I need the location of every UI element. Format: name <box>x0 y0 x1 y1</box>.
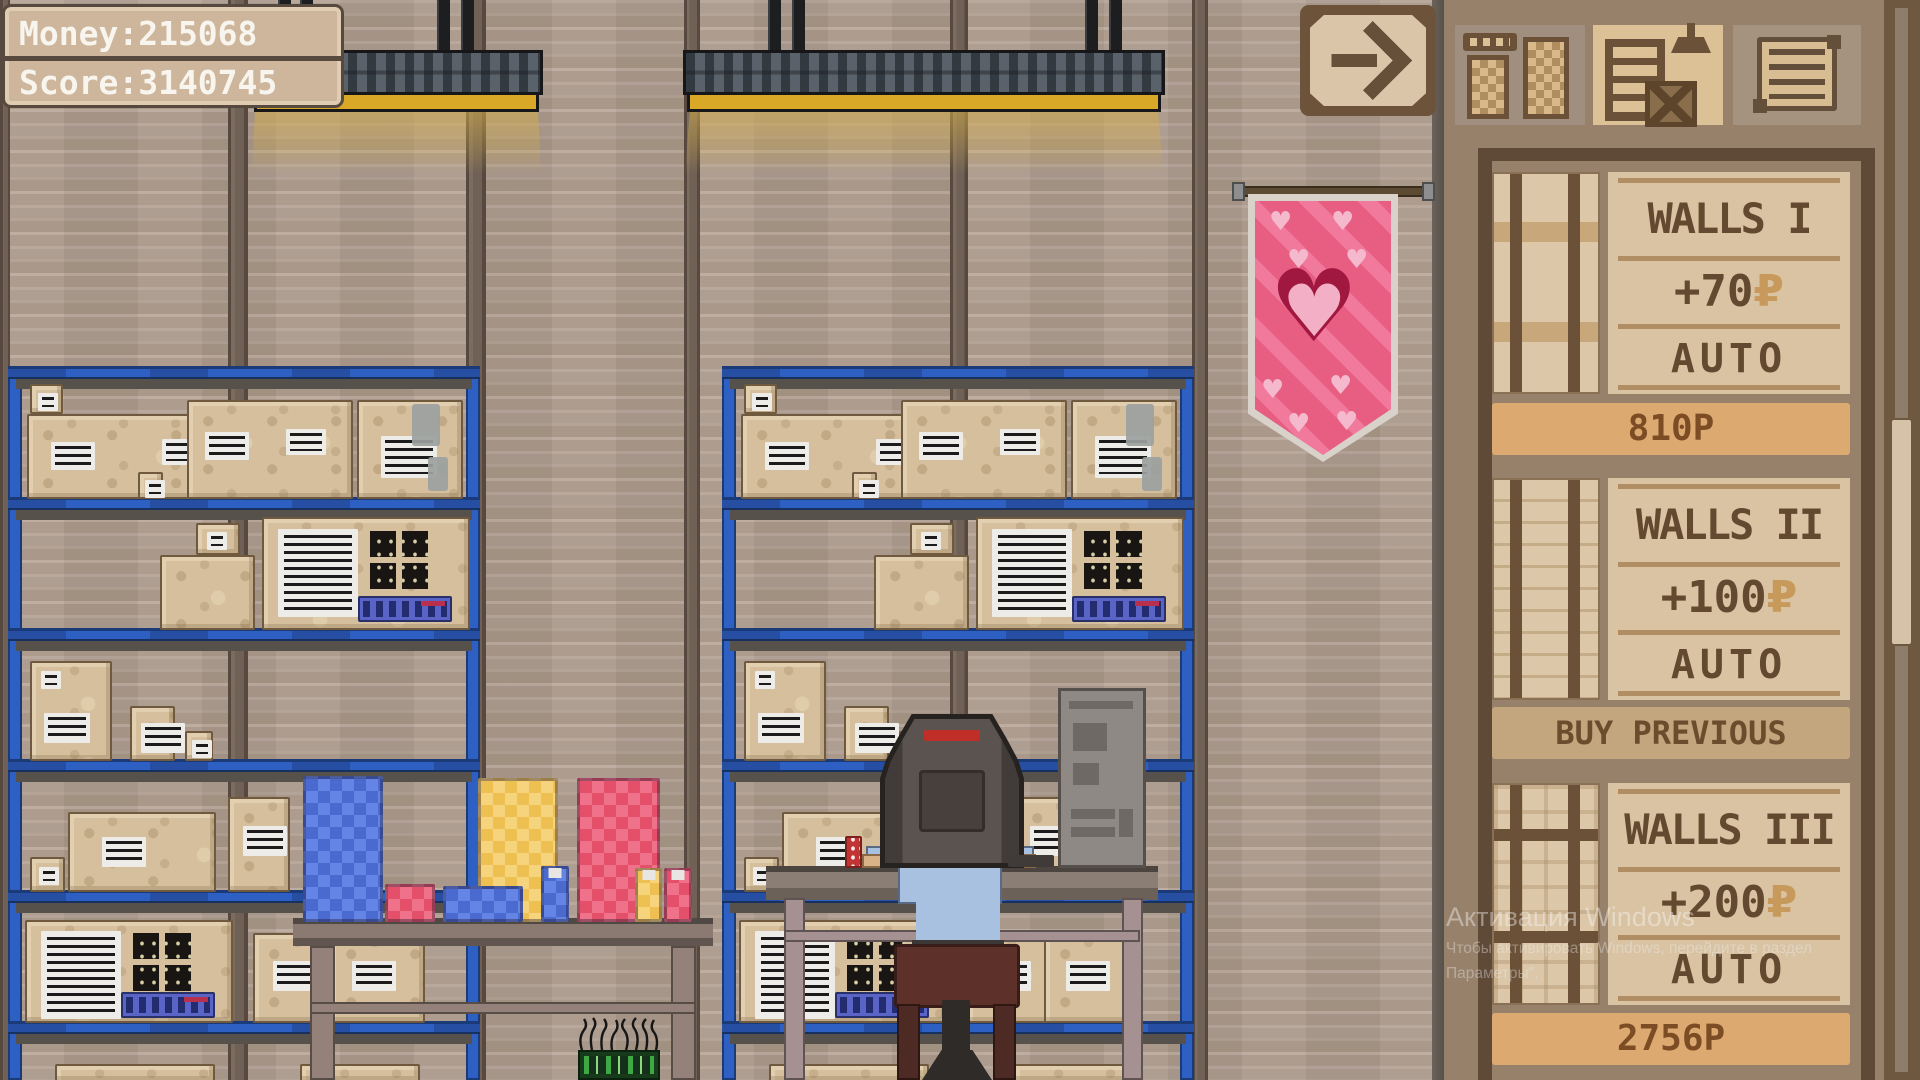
chair-leg <box>993 1004 1016 1080</box>
cardboard-box <box>357 400 463 499</box>
tower-bay <box>1073 723 1107 751</box>
item-bonus: +200₽ <box>1608 877 1850 928</box>
shipping-label <box>765 442 809 470</box>
wall-pillar <box>1192 0 1208 1080</box>
scroll-icon <box>1757 37 1837 111</box>
barcode-icon <box>121 992 215 1018</box>
scrollbar-thumb[interactable] <box>1890 418 1913 646</box>
qr-label-icon <box>1084 531 1142 589</box>
shipping-label <box>41 931 121 1019</box>
shipping-label <box>428 457 448 491</box>
shipping-label <box>145 480 165 498</box>
office-chair <box>894 944 1020 1008</box>
item-price-tag: 810P <box>1492 403 1850 455</box>
shipping-label <box>758 713 804 743</box>
cardboard-box <box>901 400 1067 499</box>
cardboard-box <box>55 1064 215 1080</box>
shipping-label <box>41 671 61 689</box>
tower-vent <box>1071 827 1115 837</box>
cardboard-box <box>910 523 954 555</box>
cardboard-box <box>30 384 63 414</box>
shop-item-walls-1[interactable]: WALLS I +70₽ AUTO <box>1492 172 1850 394</box>
shipping-label <box>1142 457 1162 491</box>
scroll-curl <box>1753 99 1767 113</box>
shipping-label <box>102 837 146 867</box>
cardboard-box <box>187 400 353 499</box>
shipping-label <box>44 713 90 743</box>
shipping-label <box>755 671 775 689</box>
shipping-label <box>51 442 95 470</box>
cardboard-box <box>744 661 826 761</box>
item-mode: AUTO <box>1608 642 1850 688</box>
lamp-post <box>461 0 474 55</box>
small-heart-icon: ♥ <box>1345 247 1368 273</box>
item-bonus: +100₽ <box>1608 572 1850 623</box>
lamp-post <box>1109 0 1122 55</box>
tower-vent <box>1119 809 1133 837</box>
lamp-post <box>437 0 450 55</box>
cardboard-box <box>30 661 112 761</box>
fabric-roll <box>635 868 662 922</box>
shelf-shadow <box>16 772 472 782</box>
monitor-vent <box>919 770 985 832</box>
next-room-button[interactable] <box>1300 5 1436 116</box>
cardboard-box <box>1071 400 1177 499</box>
cardboard-box <box>68 812 216 892</box>
tab-storage[interactable] <box>1593 25 1723 125</box>
shelf-shadow <box>16 641 472 651</box>
pc-tower <box>1058 688 1146 868</box>
shipping-label <box>919 432 963 460</box>
item-info: WALLS III +200₽ AUTO <box>1608 783 1850 1005</box>
small-heart-icon: ♥ <box>1261 377 1284 403</box>
shipping-label <box>352 961 396 991</box>
item-info: WALLS II +100₽ AUTO <box>1608 478 1850 700</box>
rod-cap-icon <box>1232 182 1245 201</box>
item-title: WALLS III <box>1608 805 1850 854</box>
rod-cap-icon <box>1422 182 1435 201</box>
ruble-icon: ₽ <box>1753 266 1784 317</box>
shelf-rack <box>722 366 736 1080</box>
small-heart-icon: ♥ <box>1335 409 1358 435</box>
shipping-label <box>38 393 58 411</box>
character-back <box>916 898 1000 944</box>
cardboard-box <box>262 517 470 630</box>
wall-preview-icon <box>1492 783 1600 1005</box>
item-price-tag: 2756P <box>1492 1013 1850 1065</box>
desk-leg <box>784 898 805 1080</box>
table-crossbar <box>310 1002 696 1014</box>
item-mode: AUTO <box>1608 947 1850 993</box>
qr-label-icon <box>370 531 428 589</box>
character-hand <box>862 854 882 868</box>
panel-border <box>1478 148 1875 161</box>
banner-cloth: ♥ ♥ ♥ ♥ ♥ ♥ ♥ ♥ ♥ ♥ <box>1248 194 1398 462</box>
dresser-door-icon <box>1467 55 1509 119</box>
lamp-post <box>768 0 781 55</box>
scroll-curl <box>1827 35 1841 49</box>
ruble-icon: ₽ <box>1767 572 1798 623</box>
shipping-label <box>205 432 249 460</box>
fabric-roll <box>443 886 523 922</box>
fabric-table <box>293 918 713 946</box>
shipping-label <box>286 429 326 455</box>
game-screen: ♥ ♥ ♥ ♥ ♥ ♥ ♥ ♥ ♥ ♥ <box>0 0 1920 1080</box>
shipping-label <box>992 529 1072 617</box>
shelf-beam <box>722 366 1194 379</box>
shipping-label <box>1126 404 1154 446</box>
shelf-beam <box>8 366 480 379</box>
shipping-label <box>1000 429 1040 455</box>
tower-vent <box>1069 701 1133 709</box>
tower-bay <box>1073 763 1099 785</box>
shipping-label <box>192 740 212 758</box>
item-bonus: +70₽ <box>1608 266 1850 317</box>
buy-previous-button[interactable]: BUY PREVIOUS <box>1492 707 1850 759</box>
fabric-roll <box>664 868 692 922</box>
sprouting-device <box>578 1050 660 1080</box>
dresser-icon <box>1463 33 1517 51</box>
chair-leg <box>897 1004 920 1080</box>
banner-pattern: ♥ ♥ ♥ ♥ ♥ ♥ ♥ ♥ ♥ ♥ <box>1255 201 1391 455</box>
shipping-label <box>39 867 59 885</box>
desk-leg <box>1122 898 1143 1080</box>
item-info: WALLS I +70₽ AUTO <box>1608 172 1850 394</box>
shipping-label <box>278 529 358 617</box>
crate-icon <box>1645 81 1697 127</box>
cardboard-box <box>844 706 889 761</box>
lamp-post <box>792 0 805 55</box>
wire-sprouts-icon <box>574 1016 664 1052</box>
crt-monitor <box>880 714 1024 868</box>
shipping-label <box>1066 961 1110 991</box>
shipping-label <box>859 480 879 498</box>
shipping-label <box>752 393 772 411</box>
lamp-post <box>1085 0 1098 55</box>
tower-vent <box>1071 809 1115 819</box>
shipping-label <box>141 723 185 753</box>
cardboard-box <box>30 857 65 892</box>
shop-item-walls-3[interactable]: WALLS III +200₽ AUTO <box>1492 783 1850 1005</box>
panel-scrollbar <box>1884 0 1920 1080</box>
hanging-lamp-icon <box>1671 23 1711 59</box>
chair-pedestal <box>942 1000 970 1058</box>
stats-panel: Money:215068 Score:3140745 <box>2 4 344 108</box>
arrow-right-icon <box>1310 15 1426 106</box>
ceiling-lamp <box>683 50 1165 95</box>
tab-orders[interactable] <box>1733 25 1861 125</box>
item-title: WALLS II <box>1608 500 1850 549</box>
fabric-roll <box>541 866 569 922</box>
cardboard-box <box>196 523 240 555</box>
shipping-label <box>207 532 227 550</box>
shelf-rack <box>8 366 22 1080</box>
shelf-shadow <box>16 379 472 389</box>
cardboard-box <box>874 555 969 630</box>
shelf-shadow <box>730 379 1186 389</box>
panel-border <box>1478 148 1492 1080</box>
cardboard-box <box>1014 1064 1134 1080</box>
money-label: Money:215068 <box>19 12 339 56</box>
cardboard-box <box>185 731 213 761</box>
small-heart-icon: ♥ <box>1331 209 1354 235</box>
small-heart-icon: ♥ <box>1329 373 1352 399</box>
shipping-label <box>412 404 440 446</box>
qr-label-icon <box>133 933 191 991</box>
shelf-shadow <box>16 1034 472 1044</box>
item-mode: AUTO <box>1608 336 1850 382</box>
item-title: WALLS I <box>1608 194 1850 243</box>
fabric-roll <box>303 776 383 922</box>
shelf-rack <box>466 366 480 1080</box>
score-label: Score:3140745 <box>19 61 339 105</box>
wall-preview-icon <box>1492 172 1600 394</box>
small-heart-icon: ♥ <box>1287 247 1310 273</box>
wardrobe-icon <box>1523 37 1569 119</box>
soda-can <box>845 836 862 868</box>
desk-clutter <box>1008 855 1054 867</box>
shop-item-walls-2[interactable]: WALLS II +100₽ AUTO <box>1492 478 1850 700</box>
lamp-tube <box>687 95 1161 112</box>
tab-furniture[interactable] <box>1455 25 1585 125</box>
small-heart-icon: ♥ <box>1269 209 1292 235</box>
cardboard-box <box>852 472 877 499</box>
cardboard-box <box>25 920 233 1023</box>
panel-border <box>1861 148 1875 1080</box>
shipping-label <box>921 532 941 550</box>
shelf-rack <box>1180 366 1194 1080</box>
big-heart-icon: ♥ <box>1282 275 1347 347</box>
shelf-shadow <box>730 641 1186 651</box>
small-heart-icon: ♥ <box>1287 411 1310 437</box>
barcode-icon <box>1072 596 1166 622</box>
cardboard-box <box>976 517 1184 630</box>
cardboard-box <box>130 706 175 761</box>
cardboard-box <box>228 797 290 892</box>
barcode-icon <box>358 596 452 622</box>
cardboard-box <box>138 472 163 499</box>
fabric-roll <box>385 884 435 922</box>
cardboard-box <box>744 384 777 414</box>
ruble-icon: ₽ <box>1767 877 1798 928</box>
wall-preview-icon <box>1492 478 1600 700</box>
shipping-label <box>243 826 287 856</box>
heart-banner: ♥ ♥ ♥ ♥ ♥ ♥ ♥ ♥ ♥ ♥ <box>1236 178 1436 468</box>
cardboard-box <box>160 555 255 630</box>
monitor-logo <box>924 730 980 741</box>
